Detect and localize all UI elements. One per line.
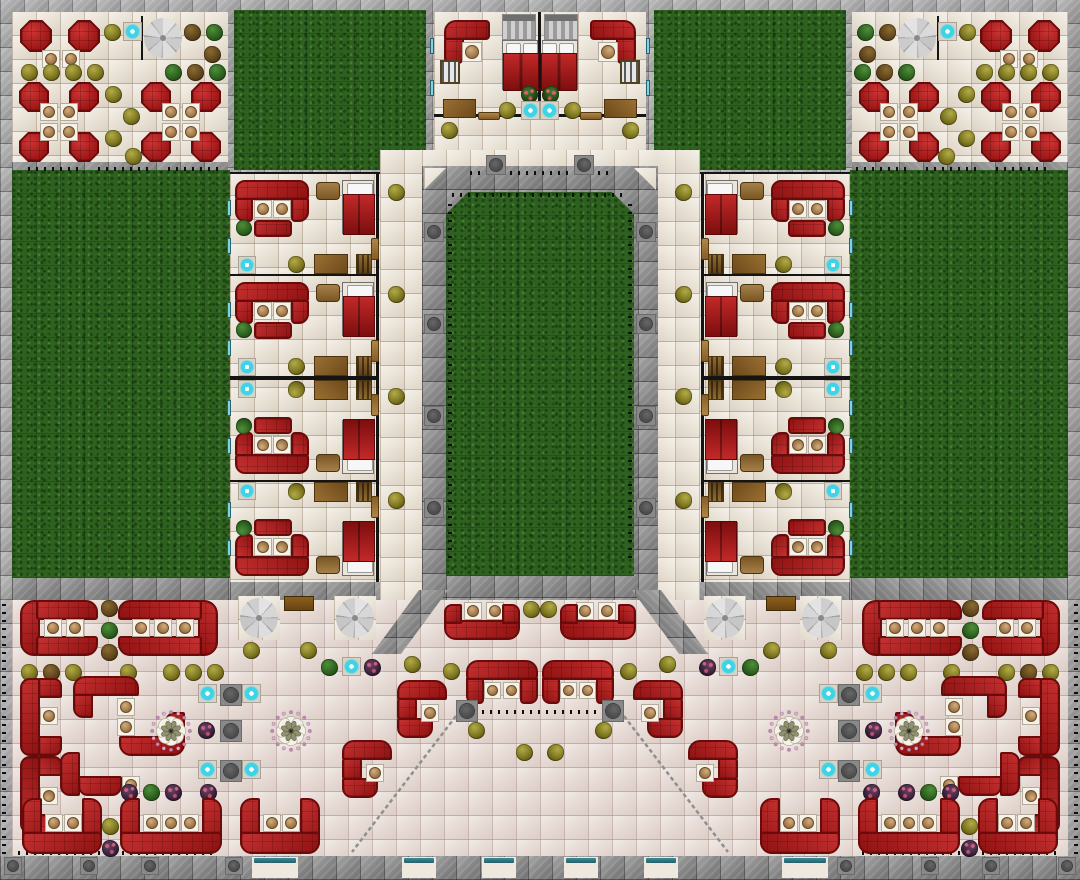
plant-olive[interactable] (441, 122, 458, 139)
desk[interactable] (732, 254, 766, 274)
dining-booth[interactable] (120, 798, 222, 854)
entrance-door[interactable] (482, 857, 516, 878)
sofa[interactable] (235, 454, 309, 474)
sofa[interactable] (291, 534, 309, 558)
nightstand[interactable] (740, 182, 764, 200)
dresser[interactable] (708, 380, 724, 400)
plant-olive[interactable] (961, 818, 978, 835)
round-table[interactable] (273, 302, 291, 320)
plant-olive[interactable] (878, 664, 895, 681)
plant-olive[interactable] (675, 184, 692, 201)
nightstand[interactable] (316, 284, 340, 302)
plant-brown[interactable] (962, 600, 979, 617)
nightstand[interactable] (316, 556, 340, 574)
plant-olive[interactable] (940, 108, 957, 125)
fountain[interactable] (824, 482, 842, 500)
dining-booth[interactable] (444, 600, 520, 640)
dresser[interactable] (708, 482, 724, 502)
pillar (838, 760, 860, 782)
plant-purple[interactable] (102, 840, 119, 857)
sofa[interactable] (771, 282, 845, 302)
plant-olive[interactable] (125, 148, 142, 165)
dresser[interactable] (708, 356, 724, 376)
plant-green[interactable] (742, 659, 759, 676)
plant-olive[interactable] (443, 663, 460, 680)
window (849, 502, 853, 518)
pillar (424, 406, 444, 426)
plant-green[interactable] (165, 64, 182, 81)
spiral-staircase[interactable] (898, 18, 936, 58)
desk[interactable] (314, 380, 348, 400)
fountain[interactable] (238, 482, 256, 500)
window (227, 540, 231, 556)
nightstand[interactable] (740, 284, 764, 302)
round-table[interactable] (254, 302, 272, 320)
sofa[interactable] (235, 534, 253, 558)
plant-olive[interactable] (976, 64, 993, 81)
fountain[interactable] (238, 256, 256, 274)
window (849, 238, 853, 254)
plant-purple[interactable] (865, 722, 882, 739)
plant-olive[interactable] (856, 664, 873, 681)
sofa[interactable] (827, 534, 845, 558)
dining-booth[interactable] (1018, 678, 1060, 756)
dining-booth[interactable] (542, 660, 614, 704)
plant-purple[interactable] (699, 659, 716, 676)
dining-booth[interactable] (20, 600, 98, 656)
sofa[interactable] (827, 198, 845, 222)
booth-cluster-quad[interactable] (141, 82, 221, 162)
plant-olive[interactable] (938, 148, 955, 165)
plant-olive[interactable] (595, 722, 612, 739)
spiral-staircase[interactable] (240, 598, 278, 638)
hotel-room-unit[interactable] (230, 276, 380, 378)
spiral-staircase[interactable] (144, 18, 182, 58)
plant-olive[interactable] (468, 722, 485, 739)
single-bed[interactable] (706, 522, 738, 576)
dining-booth[interactable] (466, 660, 538, 704)
staircase[interactable] (502, 14, 536, 40)
plant-green[interactable] (828, 220, 844, 236)
fountain[interactable] (238, 380, 256, 398)
door[interactable] (371, 238, 379, 260)
counter-desk[interactable] (766, 596, 796, 611)
dining-booth[interactable] (982, 600, 1060, 656)
plant-olive[interactable] (675, 492, 692, 509)
plant-brown[interactable] (187, 64, 204, 81)
nightstand[interactable] (316, 182, 340, 200)
sofa[interactable] (771, 556, 845, 576)
ornate-round-table[interactable] (150, 710, 192, 752)
dining-booth[interactable] (978, 798, 1058, 854)
fountain[interactable] (863, 760, 882, 779)
dining-booth[interactable] (342, 740, 394, 798)
round-table[interactable] (789, 436, 807, 454)
sofa[interactable] (771, 534, 789, 558)
fence (98, 167, 154, 171)
dining-booth[interactable] (862, 600, 962, 656)
door[interactable] (701, 238, 709, 260)
fence (996, 167, 1052, 171)
plant-green[interactable] (321, 659, 338, 676)
nightstand[interactable] (740, 556, 764, 574)
plant-olive[interactable] (288, 358, 305, 375)
plant-olive[interactable] (288, 381, 305, 398)
dining-booth[interactable] (631, 680, 683, 738)
plant-purple[interactable] (364, 659, 381, 676)
sofa[interactable] (827, 300, 845, 324)
plant-olive[interactable] (958, 130, 975, 147)
fountain[interactable] (863, 684, 882, 703)
fountain[interactable] (238, 358, 256, 376)
single-bed[interactable] (706, 282, 738, 336)
bookshelf[interactable] (620, 60, 640, 84)
plant-olive[interactable] (659, 656, 676, 673)
plant-olive[interactable] (388, 492, 405, 509)
fountain[interactable] (198, 760, 217, 779)
dresser[interactable] (356, 380, 372, 400)
plant-green[interactable] (857, 24, 874, 41)
round-table[interactable] (808, 436, 826, 454)
pillar (602, 700, 624, 722)
plant-olive[interactable] (123, 108, 140, 125)
hotel-room-unit[interactable] (700, 276, 850, 378)
booth-cluster-quad[interactable] (19, 82, 99, 162)
plant-olive[interactable] (388, 388, 405, 405)
sofa[interactable] (771, 454, 845, 474)
region-walld (850, 578, 1068, 600)
plant-olive[interactable] (675, 388, 692, 405)
plant-olive[interactable] (523, 601, 540, 618)
plant-olive[interactable] (65, 64, 82, 81)
round-table[interactable] (789, 538, 807, 556)
double-bed[interactable] (502, 40, 538, 90)
round-table[interactable] (789, 302, 807, 320)
plant-olive[interactable] (1020, 64, 1037, 81)
hotel-room-unit[interactable] (700, 378, 850, 480)
plant-olive[interactable] (288, 483, 305, 500)
sofa[interactable] (771, 300, 789, 324)
plant-green[interactable] (828, 418, 844, 434)
desk[interactable] (314, 482, 348, 502)
fountain[interactable] (719, 657, 738, 676)
plant-olive[interactable] (288, 256, 305, 273)
window (227, 238, 231, 254)
entrance-door[interactable] (252, 857, 298, 878)
plant-brown[interactable] (879, 24, 896, 41)
dining-booth[interactable] (397, 680, 449, 738)
pillar (4, 857, 22, 875)
plant-olive[interactable] (104, 24, 121, 41)
entrance-door[interactable] (644, 857, 678, 878)
hotel-room-unit[interactable] (230, 480, 380, 582)
pillar (982, 857, 1000, 875)
round-table[interactable] (254, 436, 272, 454)
door[interactable] (701, 496, 709, 518)
plant-green[interactable] (209, 64, 226, 81)
round-table[interactable] (808, 538, 826, 556)
single-bed[interactable] (706, 180, 738, 234)
desk[interactable] (443, 99, 476, 118)
pillar (424, 222, 444, 242)
plant-green[interactable] (101, 622, 118, 639)
plant-olive[interactable] (388, 286, 405, 303)
fountain[interactable] (824, 380, 842, 398)
plant-olive[interactable] (404, 656, 421, 673)
door[interactable] (478, 112, 500, 120)
window (227, 302, 231, 318)
plant-olive[interactable] (547, 744, 564, 761)
plant-olive[interactable] (516, 744, 533, 761)
sofa[interactable] (291, 198, 309, 222)
sofa[interactable] (235, 556, 309, 576)
door[interactable] (371, 340, 379, 362)
round-table[interactable] (273, 538, 291, 556)
sofa[interactable] (771, 432, 789, 456)
plant-green[interactable] (828, 520, 844, 536)
single-bed[interactable] (342, 522, 374, 576)
fountain[interactable] (242, 760, 261, 779)
spiral-staircase[interactable] (706, 598, 744, 638)
staircase[interactable] (544, 14, 578, 40)
fence (452, 193, 628, 197)
door[interactable] (580, 112, 602, 120)
nightstand[interactable] (316, 454, 340, 472)
plant-brown[interactable] (184, 24, 201, 41)
fountain[interactable] (242, 684, 261, 703)
desk[interactable] (314, 356, 348, 376)
sofa[interactable] (771, 198, 789, 222)
door[interactable] (701, 340, 709, 362)
window (849, 200, 853, 216)
sofa[interactable] (291, 300, 309, 324)
plant-olive[interactable] (564, 102, 581, 119)
plant-olive[interactable] (207, 664, 224, 681)
plant-olive[interactable] (775, 483, 792, 500)
region-grass (654, 10, 846, 170)
round-table[interactable] (273, 200, 291, 218)
pillar (141, 857, 159, 875)
plant-olive[interactable] (998, 64, 1015, 81)
plant-green[interactable] (236, 322, 252, 338)
region-grass (850, 170, 1068, 578)
dining-booth[interactable] (760, 798, 840, 854)
fountain[interactable] (521, 101, 540, 120)
plant-olive[interactable] (775, 381, 792, 398)
sofa[interactable] (235, 432, 253, 456)
hotel-room-unit[interactable] (230, 378, 380, 480)
entrance-door[interactable] (782, 857, 828, 878)
round-table[interactable] (598, 42, 618, 62)
plant-olive[interactable] (102, 818, 119, 835)
plant-olive[interactable] (300, 642, 317, 659)
dresser[interactable] (356, 482, 372, 502)
sofa[interactable] (254, 322, 292, 339)
plant-olive[interactable] (763, 642, 780, 659)
round-table[interactable] (273, 436, 291, 454)
desk[interactable] (604, 99, 637, 118)
fountain[interactable] (819, 760, 838, 779)
dining-booth[interactable] (858, 798, 960, 854)
round-table[interactable] (789, 200, 807, 218)
round-table[interactable] (254, 538, 272, 556)
plant-green[interactable] (206, 24, 223, 41)
door[interactable] (371, 394, 379, 416)
door[interactable] (371, 496, 379, 518)
fence (926, 167, 982, 171)
plant-brown[interactable] (876, 64, 893, 81)
plant-brown[interactable] (859, 46, 876, 63)
sofa[interactable] (788, 322, 826, 339)
dresser[interactable] (708, 254, 724, 274)
plant-olive[interactable] (43, 64, 60, 81)
ornate-round-table[interactable] (888, 710, 930, 752)
plant-olive[interactable] (105, 130, 122, 147)
plant-purple[interactable] (198, 722, 215, 739)
booth-cluster-quad[interactable] (859, 82, 939, 162)
window (849, 302, 853, 318)
sofa[interactable] (235, 282, 309, 302)
spiral-staircase[interactable] (802, 598, 840, 638)
region-grass (234, 10, 426, 170)
hotel-room-unit[interactable] (230, 174, 380, 276)
sofa[interactable] (827, 432, 845, 456)
entrance-door[interactable] (402, 857, 436, 878)
sofa[interactable] (788, 519, 826, 536)
fountain[interactable] (342, 657, 361, 676)
round-table[interactable] (462, 42, 482, 62)
double-bed[interactable] (542, 40, 578, 90)
fence (448, 198, 452, 558)
entrance-door[interactable] (564, 857, 598, 878)
hotel-room-unit[interactable] (700, 480, 850, 582)
fountain[interactable] (824, 256, 842, 274)
pillar (837, 857, 855, 875)
pillar (838, 684, 860, 706)
sofa[interactable] (254, 220, 292, 237)
single-bed[interactable] (342, 180, 374, 234)
plant-green[interactable] (898, 64, 915, 81)
pillar (636, 314, 656, 334)
window (646, 80, 650, 96)
fountain[interactable] (123, 22, 142, 41)
dining-booth[interactable] (118, 600, 218, 656)
round-table[interactable] (808, 200, 826, 218)
fountain[interactable] (824, 358, 842, 376)
sofa[interactable] (254, 417, 292, 434)
counter-desk[interactable] (284, 596, 314, 611)
sofa[interactable] (235, 180, 309, 200)
bookshelf[interactable] (440, 60, 460, 84)
plant-olive[interactable] (243, 642, 260, 659)
hotel-room-unit[interactable] (700, 174, 850, 276)
plant-olive[interactable] (820, 642, 837, 659)
plant-olive[interactable] (185, 664, 202, 681)
fountain[interactable] (819, 684, 838, 703)
dining-booth[interactable] (560, 600, 636, 640)
plant-olive[interactable] (540, 601, 557, 618)
plant-olive[interactable] (622, 122, 639, 139)
ornate-round-table[interactable] (768, 710, 810, 752)
ornate-round-table[interactable] (270, 710, 312, 752)
window (849, 540, 853, 556)
sofa[interactable] (235, 198, 253, 222)
pillar (220, 760, 242, 782)
sofa[interactable] (254, 519, 292, 536)
plant-brown[interactable] (101, 600, 118, 617)
plant-brown[interactable] (101, 644, 118, 661)
plant-olive[interactable] (388, 184, 405, 201)
spiral-staircase[interactable] (336, 598, 374, 638)
region-court (446, 192, 634, 576)
sofa[interactable] (788, 220, 826, 237)
plant-olive[interactable] (775, 358, 792, 375)
single-bed[interactable] (342, 420, 374, 474)
region-floor (380, 150, 422, 602)
window (227, 400, 231, 416)
fence (168, 167, 224, 171)
plant-purple[interactable] (961, 840, 978, 857)
plant-green[interactable] (828, 322, 844, 338)
window (849, 340, 853, 356)
desk[interactable] (732, 356, 766, 376)
fence (482, 710, 600, 714)
single-bed[interactable] (706, 420, 738, 474)
plant-olive[interactable] (775, 256, 792, 273)
plant-olive[interactable] (675, 286, 692, 303)
door[interactable] (701, 394, 709, 416)
dresser[interactable] (356, 254, 372, 274)
single-bed[interactable] (342, 282, 374, 336)
plant-olive[interactable] (105, 86, 122, 103)
sofa[interactable] (291, 432, 309, 456)
booth-cluster-quad[interactable] (981, 82, 1061, 162)
dining-booth[interactable] (686, 740, 738, 798)
sofa[interactable] (235, 300, 253, 324)
desk[interactable] (732, 380, 766, 400)
dining-booth[interactable] (240, 798, 320, 854)
plant-olive[interactable] (958, 86, 975, 103)
resort-floorplan-map[interactable] (0, 0, 1080, 880)
fountain[interactable] (540, 101, 559, 120)
plant-green[interactable] (962, 622, 979, 639)
plant-olive[interactable] (959, 24, 976, 41)
plant-brown[interactable] (204, 46, 221, 63)
plant-olive[interactable] (1042, 64, 1059, 81)
plant-olive[interactable] (87, 64, 104, 81)
dresser[interactable] (356, 356, 372, 376)
plant-olive[interactable] (21, 64, 38, 81)
pillar (1058, 857, 1076, 875)
plant-olive[interactable] (620, 663, 637, 680)
window (849, 438, 853, 454)
plant-olive[interactable] (499, 102, 516, 119)
desk[interactable] (314, 254, 348, 274)
plant-green[interactable] (854, 64, 871, 81)
plant-brown[interactable] (962, 644, 979, 661)
plant-green[interactable] (236, 220, 252, 236)
round-table[interactable] (808, 302, 826, 320)
round-table[interactable] (254, 200, 272, 218)
sofa[interactable] (771, 180, 845, 200)
dining-booth[interactable] (22, 798, 102, 854)
sofa[interactable] (788, 417, 826, 434)
dining-booth[interactable] (20, 678, 62, 756)
fountain[interactable] (938, 22, 957, 41)
nightstand[interactable] (740, 454, 764, 472)
fountain[interactable] (198, 684, 217, 703)
desk[interactable] (732, 482, 766, 502)
